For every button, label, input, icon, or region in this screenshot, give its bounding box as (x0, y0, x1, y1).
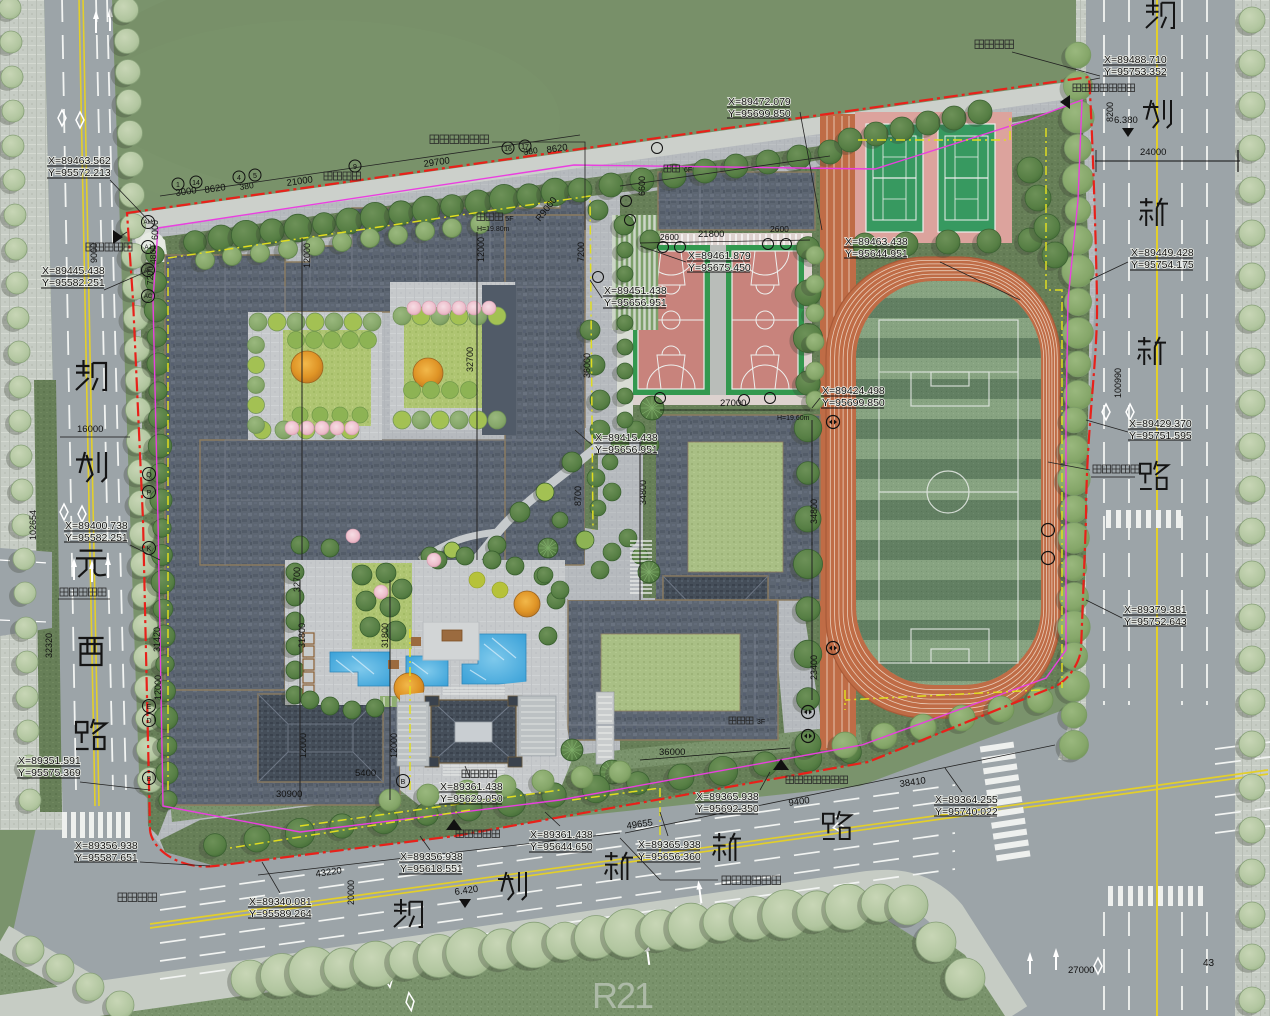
svg-text:43: 43 (1203, 958, 1215, 969)
svg-text:12000: 12000 (302, 243, 312, 268)
svg-text:32700: 32700 (465, 347, 475, 372)
svg-text:5400: 5400 (355, 768, 376, 779)
svg-text:D: D (146, 718, 151, 725)
svg-text:6F: 6F (684, 167, 692, 174)
svg-text:4800: 4800 (148, 245, 158, 264)
svg-text:B: B (401, 779, 406, 786)
svg-text:X=89351.591: X=89351.591 (18, 755, 81, 767)
svg-text:X=89463.438: X=89463.438 (845, 236, 908, 248)
svg-text:X=89429.370: X=89429.370 (1129, 418, 1192, 430)
svg-text:31420: 31420 (152, 627, 162, 652)
svg-text:X=89400.738: X=89400.738 (65, 520, 128, 532)
svg-text:X=89356.938: X=89356.938 (400, 851, 463, 863)
svg-text:X=89340.081: X=89340.081 (249, 896, 312, 908)
svg-text:5F: 5F (505, 214, 514, 223)
svg-text:27000: 27000 (720, 398, 746, 409)
svg-text:1: 1 (176, 182, 180, 189)
svg-text:X=89415.438: X=89415.438 (595, 432, 658, 444)
svg-text:X=89445.438: X=89445.438 (42, 265, 105, 277)
svg-text:9: 9 (353, 164, 357, 171)
svg-text:H=19.80m: H=19.80m (477, 226, 510, 233)
svg-text:16: 16 (504, 146, 512, 153)
svg-text:27000: 27000 (1068, 965, 1094, 976)
svg-text:36000: 36000 (582, 353, 592, 378)
svg-text:Q: Q (146, 472, 152, 479)
svg-text:7200: 7200 (145, 266, 155, 285)
svg-text:X=89356.938: X=89356.938 (75, 840, 138, 852)
svg-text:2600: 2600 (660, 232, 679, 242)
svg-text:21800: 21800 (698, 229, 724, 240)
svg-text:Y=95644.650: Y=95644.650 (530, 841, 593, 853)
svg-text:X=89463.562: X=89463.562 (48, 155, 111, 167)
svg-text:E: E (147, 704, 152, 711)
svg-text:23400: 23400 (809, 655, 819, 680)
svg-text:6.380: 6.380 (1114, 115, 1138, 126)
svg-text:16000: 16000 (77, 424, 103, 435)
svg-text:17: 17 (521, 144, 529, 151)
svg-text:Y=95656.360: Y=95656.360 (638, 851, 701, 863)
svg-text:31800: 31800 (297, 623, 307, 648)
svg-text:6600: 6600 (637, 176, 647, 196)
svg-text:2600: 2600 (770, 224, 789, 234)
svg-text:100990: 100990 (1113, 368, 1123, 398)
svg-text:5: 5 (253, 173, 257, 180)
svg-text:H=19.60m: H=19.60m (777, 415, 810, 422)
svg-text:X=89472.079: X=89472.079 (728, 96, 791, 108)
svg-text:X=89461.879: X=89461.879 (688, 250, 751, 262)
svg-text:24000: 24000 (1140, 147, 1166, 158)
svg-text:Y=95754.175: Y=95754.175 (1131, 259, 1194, 271)
svg-text:Y=95656.951: Y=95656.951 (604, 297, 667, 309)
svg-text:7200: 7200 (576, 242, 586, 262)
svg-text:Y=95699.850: Y=95699.850 (822, 397, 885, 409)
svg-text:31800: 31800 (380, 623, 390, 648)
svg-text:B: B (147, 776, 152, 783)
svg-text:6000: 6000 (150, 220, 160, 240)
svg-text:X=89379.381: X=89379.381 (1124, 604, 1187, 616)
svg-text:8700: 8700 (573, 486, 583, 506)
svg-text:X=89365.938: X=89365.938 (696, 791, 759, 803)
svg-text:P: P (147, 490, 152, 497)
svg-text:X=89361.438: X=89361.438 (530, 829, 593, 841)
svg-text:14: 14 (192, 180, 200, 187)
svg-text:3F: 3F (757, 719, 765, 726)
svg-text:Y=95575.369: Y=95575.369 (18, 767, 81, 779)
svg-text:AC: AC (144, 294, 153, 300)
svg-text:Y=95629.050: Y=95629.050 (440, 793, 503, 805)
svg-text:20000: 20000 (346, 880, 356, 905)
svg-text:R21: R21 (592, 975, 653, 1016)
svg-text:102654: 102654 (28, 510, 38, 540)
svg-text:K: K (147, 546, 152, 553)
svg-text:380: 380 (239, 180, 255, 192)
svg-text:34800: 34800 (809, 499, 819, 524)
svg-text:X=89365.938: X=89365.938 (638, 839, 701, 851)
svg-text:X=89424.498: X=89424.498 (822, 385, 885, 397)
svg-text:Y=95618.551: Y=95618.551 (400, 863, 463, 875)
svg-text:X=89451.438: X=89451.438 (604, 285, 667, 297)
svg-text:12000: 12000 (153, 675, 163, 700)
svg-text:Y=95692.350: Y=95692.350 (696, 803, 759, 815)
svg-text:X=89364.255: X=89364.255 (935, 794, 998, 806)
svg-text:X=89361.438: X=89361.438 (440, 781, 503, 793)
svg-text:X=89488.710: X=89488.710 (1104, 54, 1167, 66)
svg-text:Y=95572.213: Y=95572.213 (48, 167, 111, 179)
svg-text:X=89449.428: X=89449.428 (1131, 247, 1194, 259)
svg-text:32320: 32320 (44, 633, 54, 658)
svg-text:30900: 30900 (276, 789, 302, 800)
svg-text:Y=95582.251: Y=95582.251 (42, 277, 105, 289)
svg-text:4: 4 (237, 175, 241, 182)
